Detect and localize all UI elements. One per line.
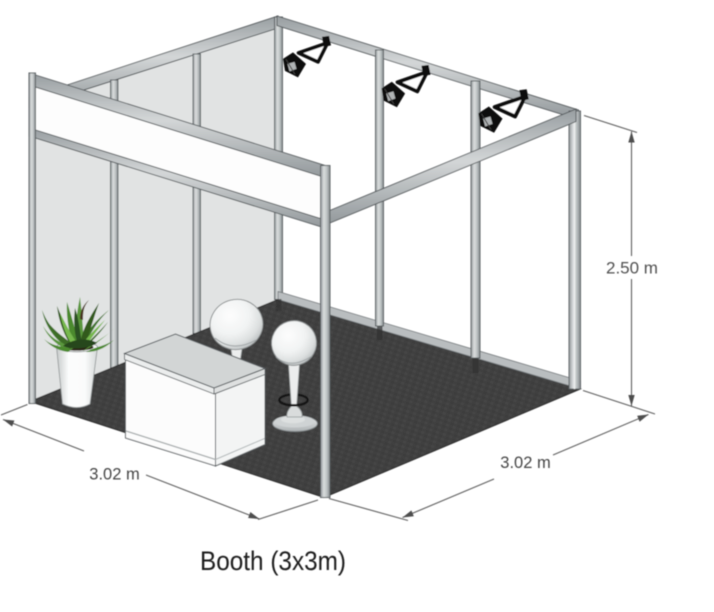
svg-text:3.02 m: 3.02 m — [500, 454, 550, 472]
svg-text:2.50 m: 2.50 m — [606, 259, 658, 278]
svg-text:Booth (3x3m): Booth (3x3m) — [200, 546, 346, 576]
svg-text:3.02 m: 3.02 m — [89, 466, 139, 484]
